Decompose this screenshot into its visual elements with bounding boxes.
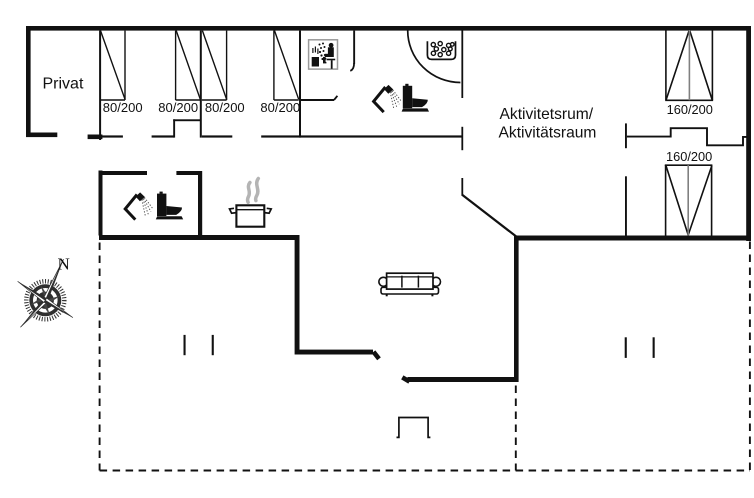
svg-text:80/200: 80/200 (103, 100, 143, 115)
svg-text:N: N (58, 255, 70, 274)
svg-text:Aktivitätsraum: Aktivitätsraum (499, 125, 597, 142)
svg-text:160/200: 160/200 (666, 149, 712, 164)
svg-text:80/200: 80/200 (205, 100, 245, 115)
svg-text:80/200: 80/200 (158, 100, 198, 115)
svg-text:Aktivitetsrum/: Aktivitetsrum/ (500, 106, 594, 123)
svg-text:160/200: 160/200 (667, 102, 713, 117)
svg-text:Privat: Privat (43, 76, 84, 93)
svg-text:80/200: 80/200 (260, 100, 300, 115)
